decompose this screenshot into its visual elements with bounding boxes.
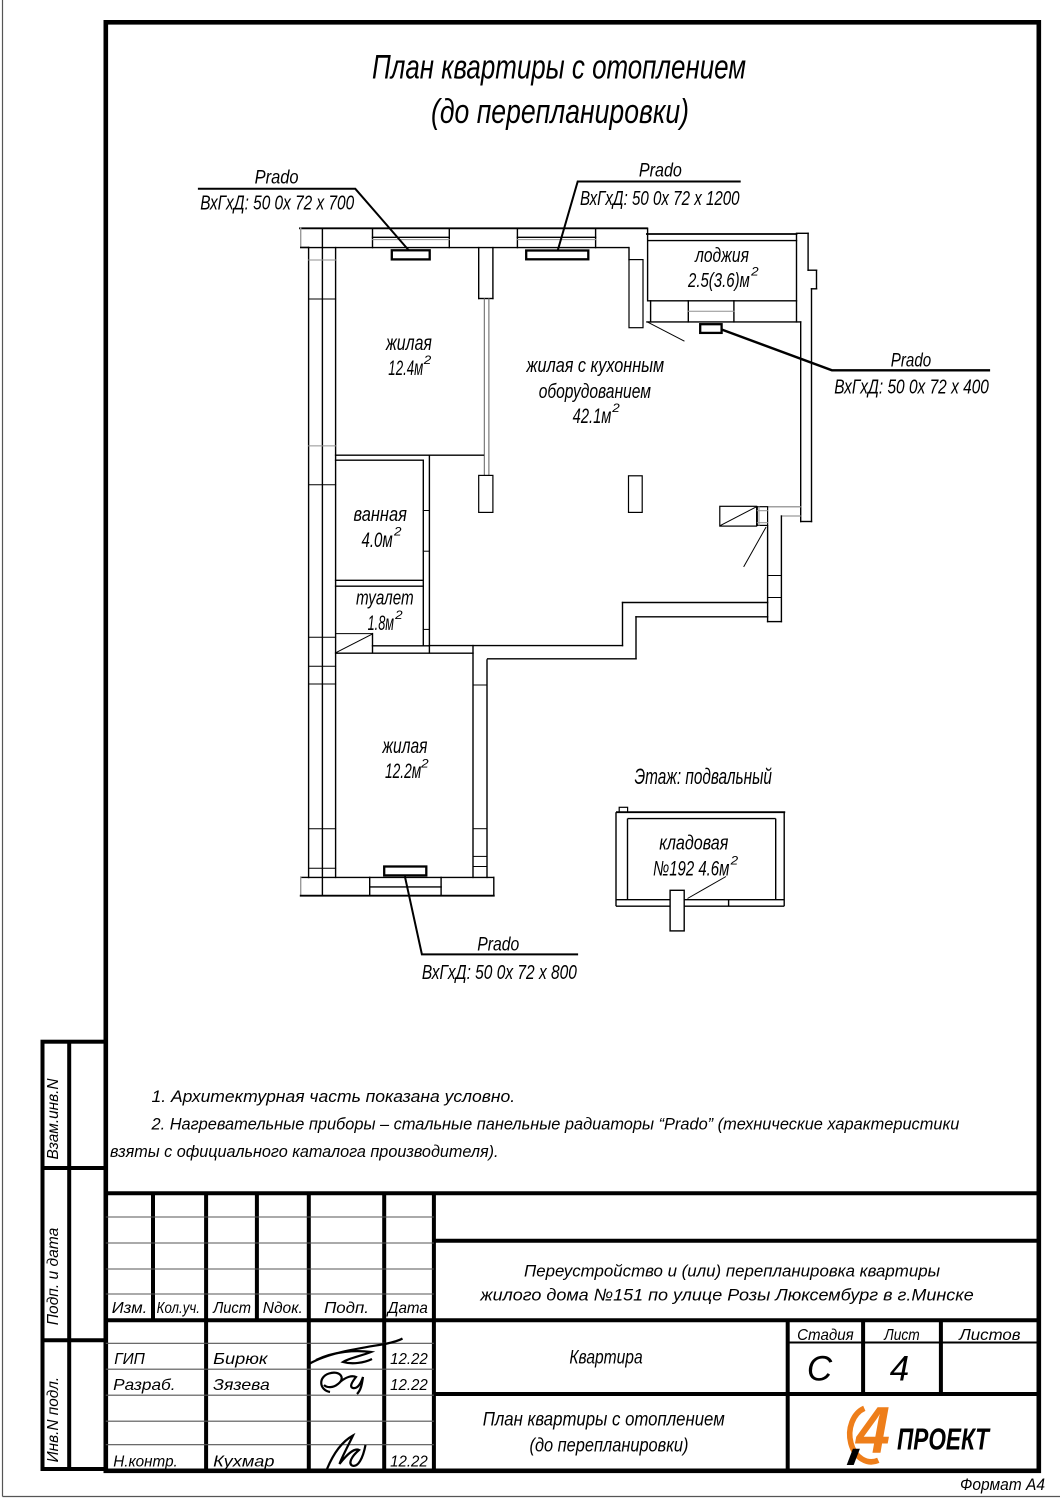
- svg-text:2: 2: [423, 353, 432, 367]
- svg-text:2: 2: [420, 757, 429, 771]
- svg-text:жилая: жилая: [382, 735, 428, 758]
- svg-text:Кухмар: Кухмар: [213, 1453, 274, 1470]
- svg-text:4: 4: [854, 1393, 890, 1467]
- svg-text:2: 2: [729, 854, 738, 868]
- svg-text:жилого дома №151 по улице Розы: жилого дома №151 по улице Розы Люксембур…: [479, 1286, 974, 1305]
- svg-text:ВхГхД: 50 0х 72 х 400: ВхГхД: 50 0х 72 х 400: [834, 377, 989, 399]
- svg-text:Лист: Лист: [212, 1300, 251, 1317]
- svg-text:№192 4.6м: №192 4.6м: [653, 857, 729, 880]
- svg-text:жилая с кухонным: жилая с кухонным: [526, 355, 665, 377]
- svg-text:Разраб.: Разраб.: [113, 1377, 175, 1394]
- svg-text:(до перепланировки): (до перепланировки): [431, 93, 689, 131]
- svg-text:4.0м: 4.0м: [362, 529, 393, 552]
- svg-text:С: С: [807, 1350, 833, 1389]
- svg-text:4: 4: [890, 1350, 909, 1389]
- svg-text:Этаж: подвальный: Этаж: подвальный: [635, 764, 772, 789]
- svg-text:ВхГхД: 50 0х 72 х 700: ВхГхД: 50 0х 72 х 700: [200, 193, 354, 215]
- svg-text:Формат А4: Формат А4: [960, 1475, 1045, 1494]
- svg-text:Лист: Лист: [883, 1327, 919, 1344]
- svg-text:Переустройство и (или) перепла: Переустройство и (или) перепланировка кв…: [524, 1262, 940, 1281]
- svg-text:ВхГхД: 50 0х 72 х 800: ВхГхД: 50 0х 72 х 800: [422, 962, 577, 984]
- svg-text:оборудованием: оборудованием: [539, 381, 651, 403]
- svg-text:12.22: 12.22: [390, 1377, 428, 1394]
- svg-text:2: 2: [750, 265, 759, 279]
- svg-text:Подп. и дата: Подп. и дата: [45, 1228, 62, 1326]
- svg-text:Подп.: Подп.: [324, 1300, 369, 1317]
- svg-text:кладовая: кладовая: [659, 832, 728, 854]
- svg-text:Стадия: Стадия: [797, 1327, 854, 1344]
- svg-text:Prado: Prado: [255, 168, 299, 189]
- svg-text:ПРОЕКТ: ПРОЕКТ: [897, 1422, 991, 1457]
- svg-text:ванная: ванная: [354, 504, 408, 526]
- svg-text:(до перепланировки): (до перепланировки): [530, 1436, 689, 1457]
- svg-text:взяты с официального каталога: взяты с официального каталога производит…: [110, 1143, 499, 1161]
- svg-text:2: 2: [611, 401, 620, 415]
- svg-text:Prado: Prado: [891, 351, 931, 372]
- svg-text:жилая: жилая: [385, 332, 432, 355]
- svg-text:Бирюк: Бирюк: [213, 1351, 269, 1368]
- svg-text:Листов: Листов: [958, 1327, 1020, 1344]
- svg-text:2.5(3.6)м: 2.5(3.6)м: [687, 270, 750, 292]
- svg-text:План квартиры с отоплением: План квартиры с отоплением: [483, 1410, 725, 1431]
- svg-text:ВхГхД: 50 0х 72 х 1200: ВхГхД: 50 0х 72 х 1200: [580, 188, 740, 210]
- svg-text:2: 2: [394, 608, 403, 622]
- svg-text:2: 2: [393, 525, 402, 539]
- svg-text:Дата: Дата: [386, 1300, 428, 1317]
- svg-text:Зязева: Зязева: [213, 1377, 270, 1394]
- svg-text:1.8м: 1.8м: [368, 612, 394, 635]
- svg-text:Nдок.: Nдок.: [263, 1300, 303, 1317]
- svg-text:2. Нагревательные приборы – ст: 2. Нагревательные приборы – стальные пан…: [150, 1116, 959, 1134]
- svg-text:12.22: 12.22: [390, 1351, 428, 1368]
- svg-text:Н.контр.: Н.контр.: [113, 1453, 178, 1470]
- svg-text:лоджия: лоджия: [694, 245, 749, 267]
- svg-text:Кол.уч.: Кол.уч.: [157, 1300, 200, 1317]
- svg-text:Prado: Prado: [639, 161, 682, 182]
- svg-text:Инв.N подл.: Инв.N подл.: [45, 1377, 62, 1463]
- svg-text:Квартира: Квартира: [569, 1348, 642, 1369]
- svg-text:Изм.: Изм.: [112, 1300, 147, 1317]
- svg-text:План квартиры с отоплением: План квартиры с отоплением: [372, 49, 746, 87]
- svg-text:42.1м: 42.1м: [573, 405, 612, 428]
- svg-text:ГИП: ГИП: [114, 1351, 145, 1368]
- svg-text:1. Архитектурная часть показан: 1. Архитектурная часть показана условно.: [152, 1088, 516, 1106]
- svg-text:12.4м: 12.4м: [388, 357, 423, 380]
- svg-text:12.2м: 12.2м: [385, 760, 421, 783]
- svg-text:туалет: туалет: [356, 588, 414, 610]
- svg-text:12.22: 12.22: [390, 1453, 428, 1470]
- svg-text:Взам.инв.N: Взам.инв.N: [45, 1078, 62, 1159]
- svg-text:Prado: Prado: [477, 935, 519, 956]
